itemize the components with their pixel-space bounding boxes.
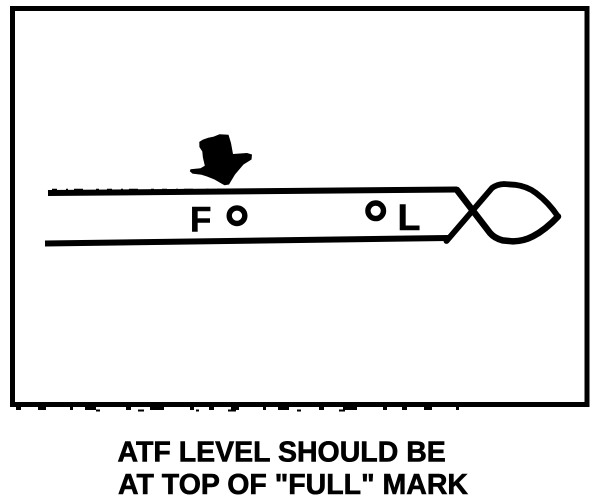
svg-text:F: F [190, 201, 211, 240]
svg-text:ATF LEVEL SHOULD BE: ATF LEVEL SHOULD BE [118, 437, 446, 469]
svg-text:L: L [398, 196, 421, 238]
svg-text:AT TOP OF "FULL" MARK: AT TOP OF "FULL" MARK [118, 469, 468, 501]
